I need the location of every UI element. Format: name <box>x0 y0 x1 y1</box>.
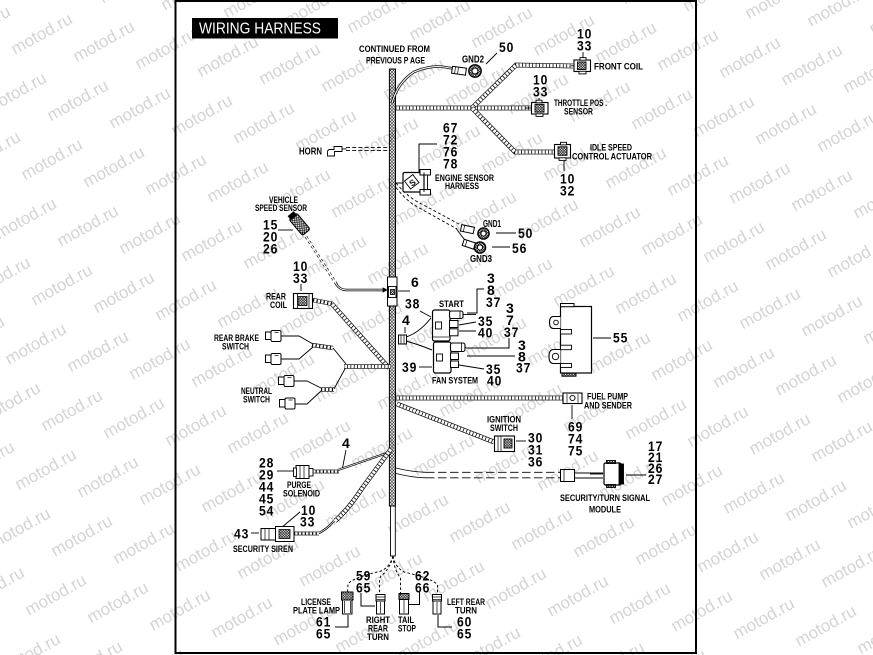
svg-text:40: 40 <box>478 325 493 341</box>
svg-text:65: 65 <box>457 626 472 642</box>
svg-text:39: 39 <box>402 359 417 375</box>
svg-text:WIRING HARNESS: WIRING HARNESS <box>199 21 321 38</box>
svg-text:4: 4 <box>342 435 351 451</box>
svg-text:40: 40 <box>487 373 502 389</box>
svg-text:6: 6 <box>411 274 420 290</box>
svg-text:65: 65 <box>356 580 371 596</box>
svg-text:33: 33 <box>300 514 315 530</box>
svg-text:TURN: TURN <box>367 632 389 642</box>
svg-text:START: START <box>439 299 464 309</box>
svg-text:SWITCH: SWITCH <box>222 342 249 352</box>
svg-text:36: 36 <box>528 454 543 470</box>
svg-text:50: 50 <box>499 39 514 55</box>
svg-text:GND1: GND1 <box>483 219 501 230</box>
svg-text:33: 33 <box>533 84 548 100</box>
svg-text:GND2: GND2 <box>462 55 484 66</box>
svg-text:FAN SYSTEM: FAN SYSTEM <box>432 376 478 386</box>
svg-text:56: 56 <box>512 240 527 256</box>
svg-text:4: 4 <box>402 312 411 328</box>
svg-text:43: 43 <box>234 526 249 542</box>
svg-text:65: 65 <box>316 626 331 642</box>
svg-text:SECURITY/TURN SIGNAL: SECURITY/TURN SIGNAL <box>560 493 650 503</box>
svg-text:32: 32 <box>560 183 575 199</box>
svg-text:CONTINUED FROM: CONTINUED FROM <box>359 44 430 54</box>
svg-text:75: 75 <box>568 443 583 459</box>
svg-text:33: 33 <box>293 270 308 286</box>
svg-text:38: 38 <box>405 296 420 312</box>
svg-text:CONTROL ACTUATOR: CONTROL ACTUATOR <box>572 152 652 162</box>
svg-text:MODULE: MODULE <box>589 505 621 515</box>
svg-text:AND SENDER: AND SENDER <box>584 401 632 411</box>
svg-text:78: 78 <box>443 156 458 172</box>
svg-text:HORN: HORN <box>299 147 322 158</box>
svg-text:26: 26 <box>263 241 278 257</box>
svg-text:SWITCH: SWITCH <box>490 423 518 433</box>
svg-text:33: 33 <box>577 38 592 54</box>
svg-text:37: 37 <box>486 294 501 310</box>
svg-text:SWITCH: SWITCH <box>243 395 270 405</box>
svg-text:50: 50 <box>518 225 533 241</box>
svg-text:66: 66 <box>415 580 430 596</box>
svg-text:SENSOR: SENSOR <box>564 107 593 117</box>
svg-text:SECURITY SIREN: SECURITY SIREN <box>233 544 293 554</box>
svg-text:54: 54 <box>259 503 274 519</box>
svg-text:PREVIOUS P AGE: PREVIOUS P AGE <box>366 56 425 66</box>
svg-text:SOLENOID: SOLENOID <box>283 489 320 499</box>
svg-text:COIL: COIL <box>270 300 287 310</box>
svg-text:FRONT COIL: FRONT COIL <box>594 62 643 72</box>
svg-text:37: 37 <box>516 360 531 376</box>
svg-text:37: 37 <box>504 324 519 340</box>
svg-text:GND3: GND3 <box>470 254 492 265</box>
svg-text:HARNESS: HARNESS <box>445 181 479 191</box>
svg-text:27: 27 <box>648 471 663 487</box>
svg-text:STOP: STOP <box>398 624 416 634</box>
svg-text:SPEED SENSOR: SPEED SENSOR <box>255 203 307 213</box>
svg-text:55: 55 <box>613 330 628 346</box>
